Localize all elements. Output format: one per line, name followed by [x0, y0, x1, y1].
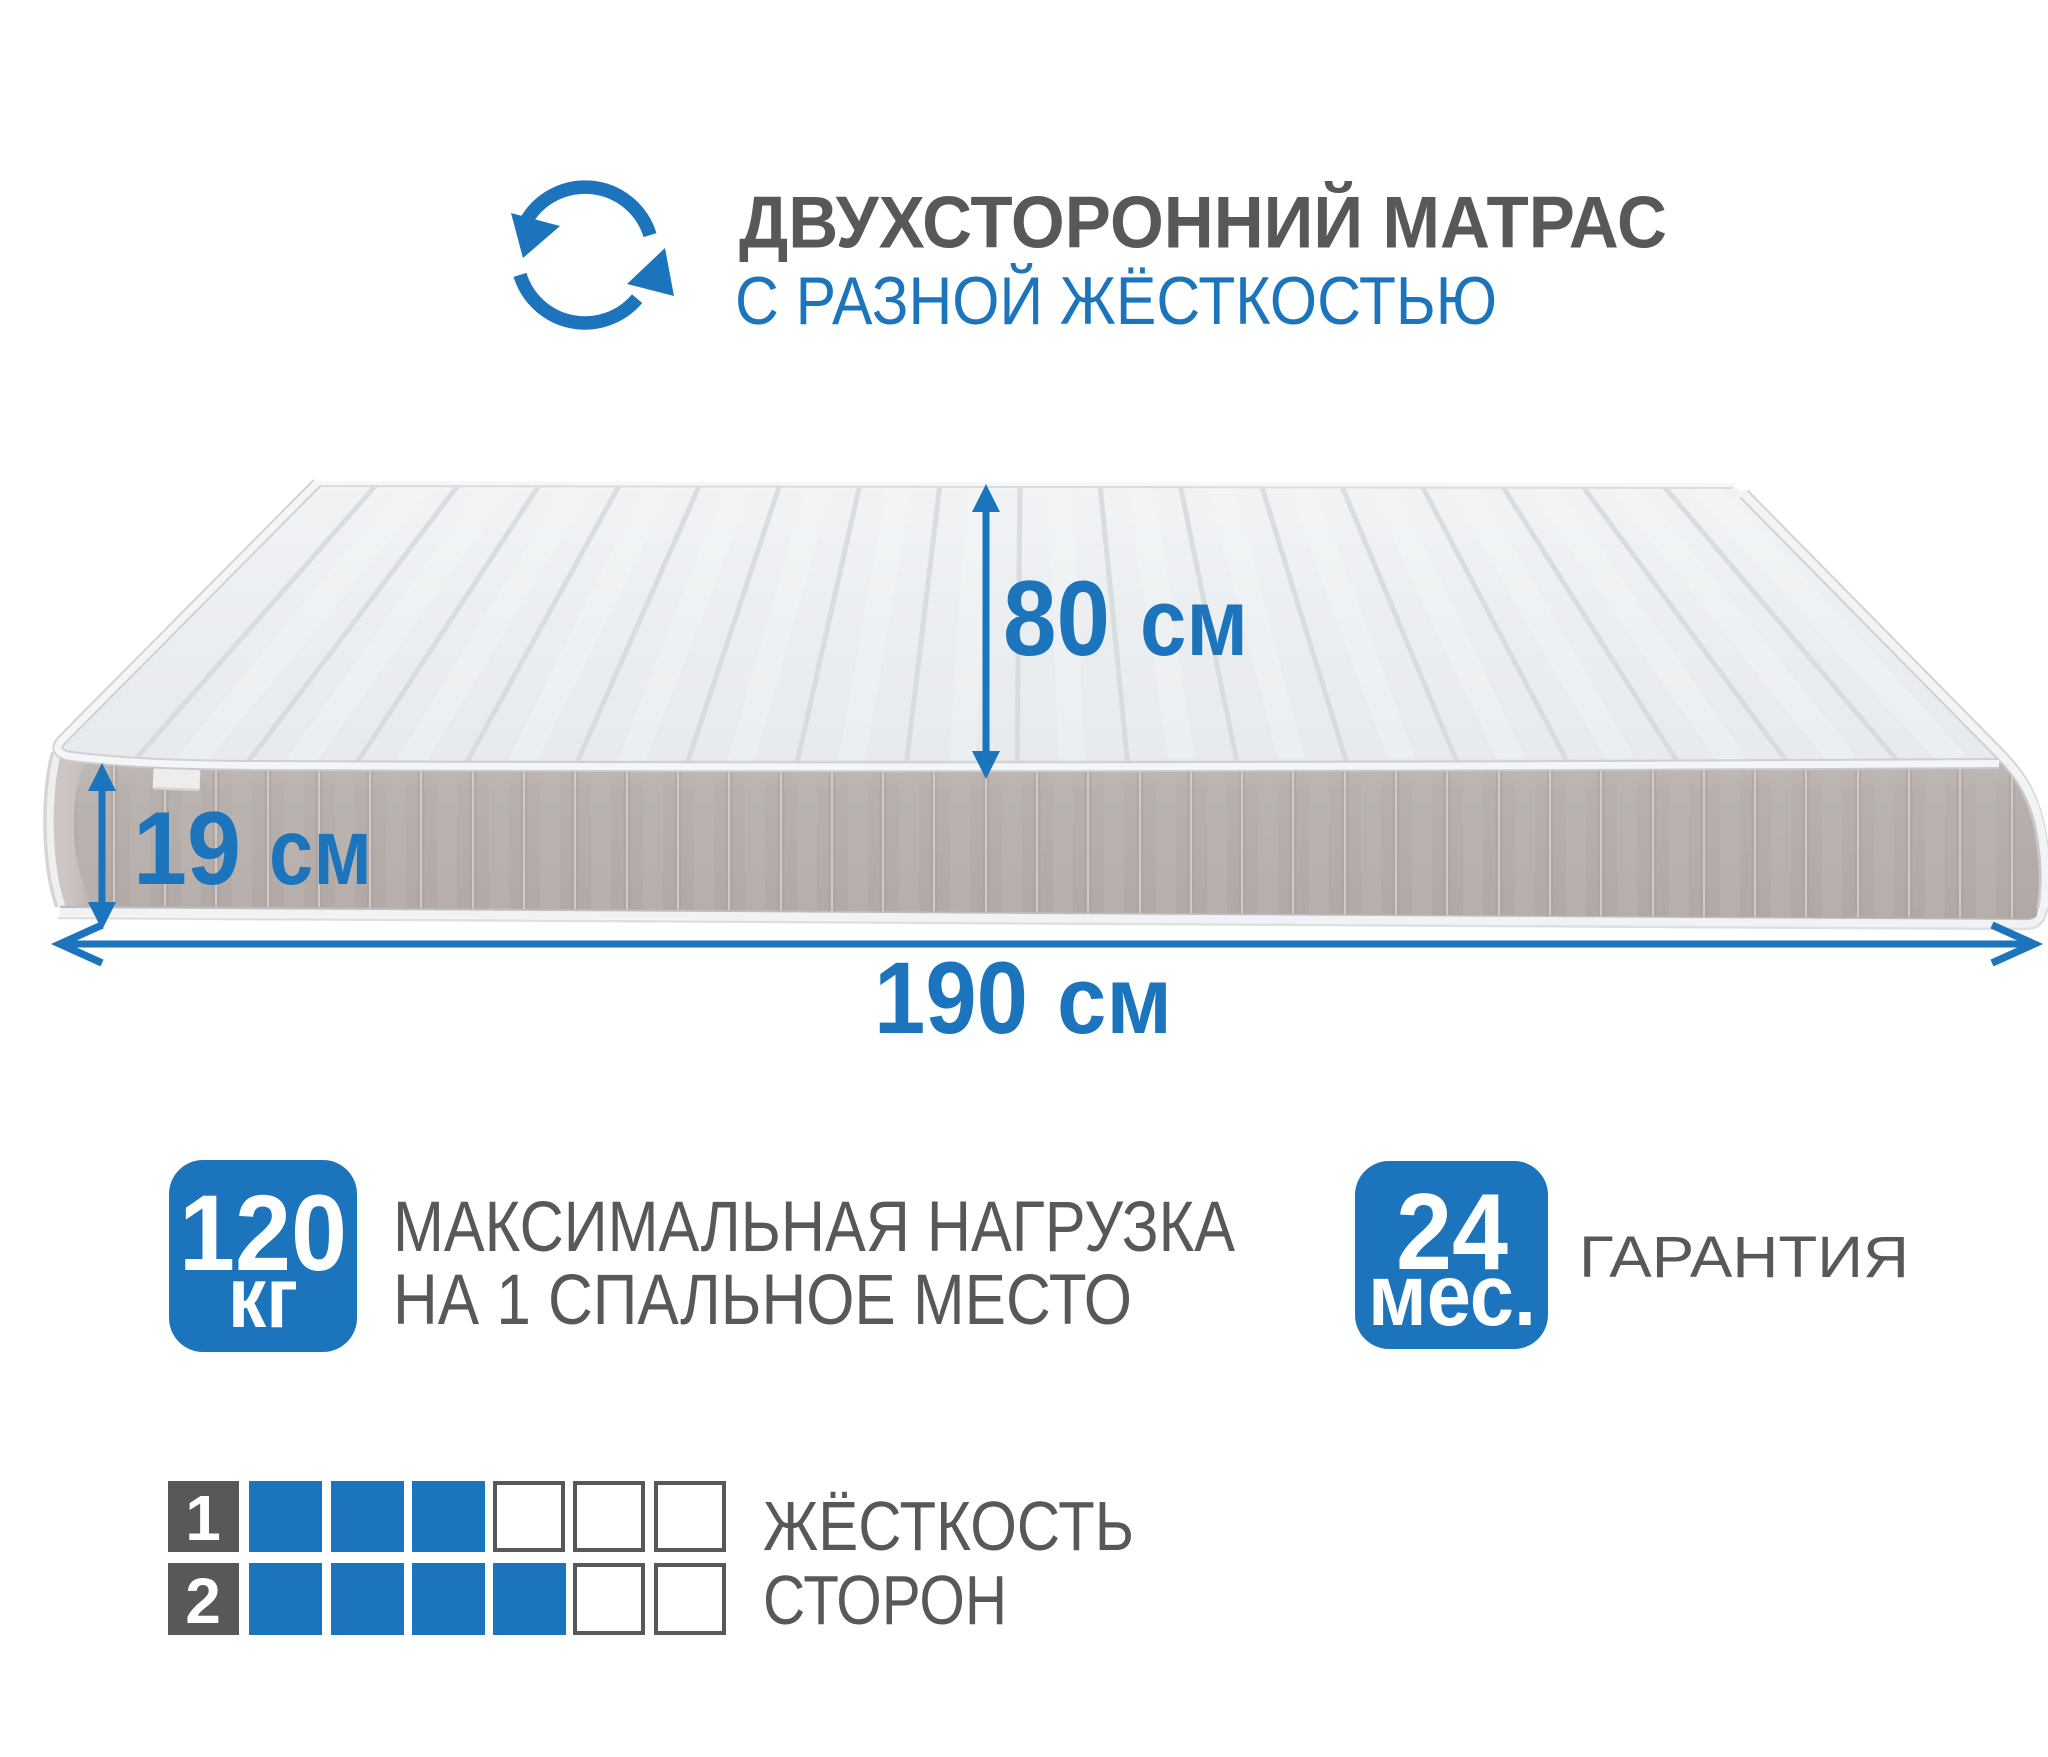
svg-text:ГАРАНТИЯ: ГАРАНТИЯ	[1579, 1225, 1909, 1290]
svg-text:см: см	[1140, 569, 1248, 676]
svg-text:кг: кг	[228, 1250, 298, 1346]
svg-text:80: 80	[1003, 558, 1110, 678]
svg-text:190: 190	[874, 941, 1028, 1055]
svg-text:см: см	[269, 799, 372, 905]
svg-text:НА 1 СПАЛЬНОЕ МЕСТО: НА 1 СПАЛЬНОЕ МЕСТО	[393, 1261, 1132, 1340]
svg-text:см: см	[1057, 947, 1172, 1054]
svg-text:ДВУХСТОРОННИЙ МАТРАС: ДВУХСТОРОННИЙ МАТРАС	[739, 182, 1667, 264]
svg-text:СТОРОН: СТОРОН	[763, 1561, 1007, 1639]
svg-text:мес.: мес.	[1368, 1247, 1536, 1344]
svg-text:2: 2	[185, 1565, 221, 1637]
svg-text:19: 19	[133, 791, 241, 907]
svg-text:ЖЁСТКОСТЬ: ЖЁСТКОСТЬ	[763, 1487, 1134, 1565]
svg-text:1: 1	[185, 1482, 221, 1554]
svg-text:С РАЗНОЙ ЖЁСТКОСТЬЮ: С РАЗНОЙ ЖЁСТКОСТЬЮ	[735, 262, 1497, 339]
svg-text:МАКСИМАЛЬНАЯ НАГРУЗКА: МАКСИМАЛЬНАЯ НАГРУЗКА	[393, 1188, 1236, 1267]
